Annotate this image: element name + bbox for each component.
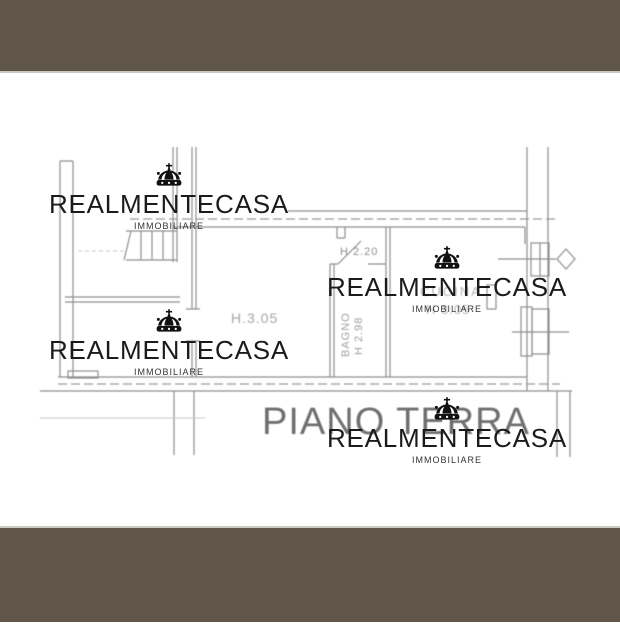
bathroom-height-label: H 2.98 [353, 317, 365, 355]
hallway-height-label: H 2.20 [340, 246, 378, 258]
kitchen-label: CUCINA [420, 284, 482, 299]
bathroom-label: BAGNO [340, 312, 352, 357]
left-room-height-label: H.3.05 [231, 310, 278, 326]
plan-faint-lines [40, 251, 205, 418]
kitchen-height-label: H 3.05 [426, 302, 470, 317]
plan-title: PIANO TERRA [262, 401, 530, 443]
frame-band-top [0, 0, 620, 73]
frame-band-bottom [0, 526, 620, 622]
plan-room-labels: H 2.20 H.3.05 BAGNO H 2.98 CUCINA H 3.05 [231, 246, 482, 357]
